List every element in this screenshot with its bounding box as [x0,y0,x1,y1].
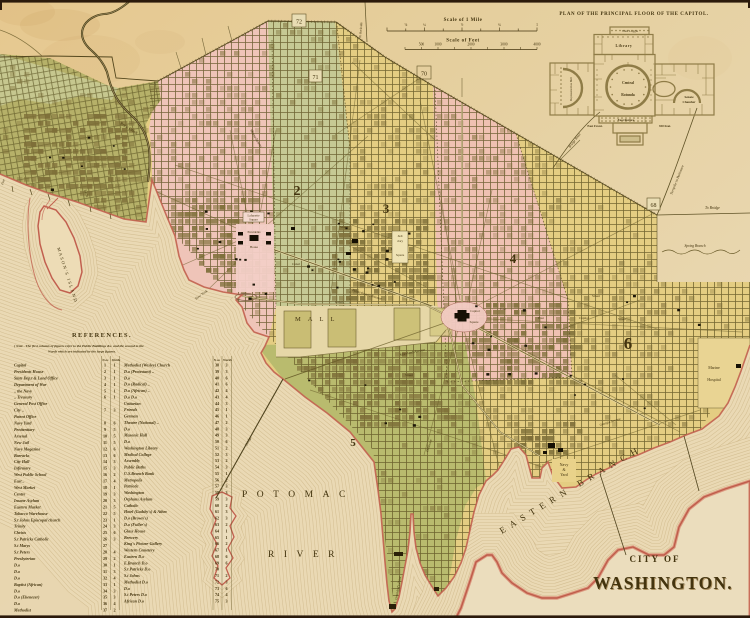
svg-text:¼: ¼ [423,23,426,27]
svg-text:Scale of Feet: Scale of Feet [446,39,479,44]
svg-text:WASHINGTON.: WASHINGTON. [593,573,733,593]
svg-text:3000: 3000 [500,43,507,47]
svg-text:Wards: Wards [223,358,232,362]
svg-text:72: 72 [296,20,302,26]
svg-text:Capitol: Capitol [579,316,589,320]
svg-text:PLAN OF THE PRINCIPAL FLOOR OF: PLAN OF THE PRINCIPAL FLOOR OF THE CAPIT… [559,12,709,17]
svg-text:5: 5 [350,437,356,449]
svg-text:Marine: Marine [708,365,720,370]
svg-text:East Front.: East Front. [587,124,603,128]
svg-text:1000: 1000 [434,43,441,47]
svg-text:ciary: ciary [397,239,403,243]
svg-text:Library: Library [615,44,632,48]
svg-text:½: ½ [461,23,464,27]
svg-text:71: 71 [313,75,319,81]
svg-text:¾: ¾ [498,23,501,27]
svg-text:Street: Street [405,373,413,377]
svg-text:East: East [500,307,506,311]
svg-text:2: 2 [294,184,301,199]
svg-text:500: 500 [419,43,425,47]
svg-text:Wards which are indicated by t: Wards which are indicated by the large f… [48,350,116,354]
svg-text:Square: Square [249,218,258,222]
svg-text:Hospital: Hospital [707,377,721,382]
svg-text:68: 68 [651,203,657,209]
svg-text:Capitol: Capitol [470,309,479,313]
svg-text:To Bridge: To Bridge [705,206,720,210]
svg-text:Street: Street [340,225,348,229]
svg-text:2000: 2000 [467,43,474,47]
svg-text:House: House [250,245,259,249]
svg-text:4: 4 [510,251,517,266]
svg-text:Representatives Hall: Representatives Hall [570,77,573,100]
svg-text:Central: Central [622,81,634,85]
svg-text:Rotunda: Rotunda [621,93,635,97]
svg-text:Canal: Canal [335,300,343,304]
svg-text:Square: Square [470,320,479,324]
svg-text:East: East [538,316,544,320]
svg-text:Judi: Judi [397,234,402,238]
svg-text:( Note . The first column of f: ( Note . The first column of figures ref… [14,344,144,348]
svg-text:MALL: MALL [295,316,341,323]
svg-text:Presidents: Presidents [247,230,261,234]
svg-text:1: 1 [536,23,538,27]
svg-text:Street: Street [618,317,626,321]
svg-text:3: 3 [383,201,390,216]
svg-text:⅛: ⅛ [404,23,407,27]
svg-text:Senate: Senate [684,95,694,99]
svg-text:West Loggia: West Loggia [622,29,639,33]
svg-text:CITY OF: CITY OF [630,554,681,564]
svg-text:N.os: N.os [213,358,221,362]
svg-text:Chamber: Chamber [683,100,697,104]
svg-text:Canal: Canal [292,262,300,266]
svg-text:N.os: N.os [101,358,109,362]
svg-text:Wards: Wards [112,358,121,362]
svg-text:Street: Street [592,294,600,298]
svg-text:6: 6 [624,334,633,353]
svg-text:350 Feet.: 350 Feet. [659,124,671,128]
svg-text:4000: 4000 [533,43,540,47]
svg-text:East Portico: East Portico [618,118,635,122]
svg-text:Square: Square [396,253,405,257]
svg-text:70: 70 [421,72,427,78]
svg-text:Yard: Yard [560,472,568,477]
svg-text:RIVER: RIVER [268,550,344,560]
svg-text:POTOMAC: POTOMAC [242,490,355,500]
svg-text:REFERENCES.: REFERENCES. [72,332,132,339]
svg-text:Spring Branch: Spring Branch [684,244,705,248]
